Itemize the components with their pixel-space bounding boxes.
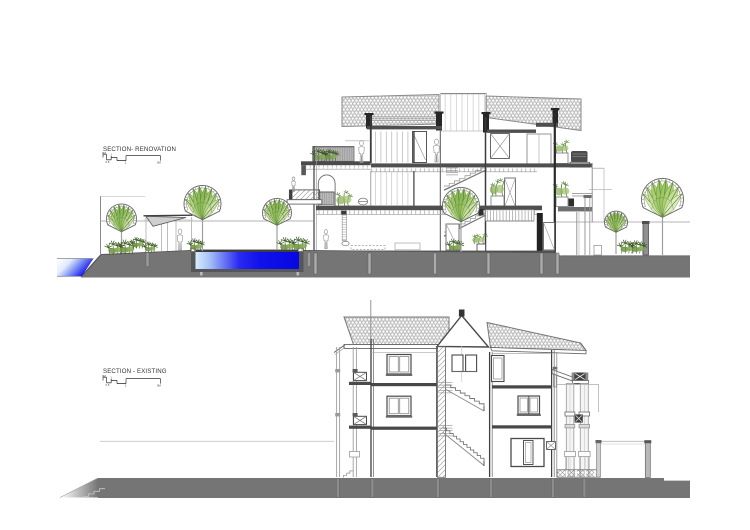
svg-text:0.5: 0.5 xyxy=(106,383,110,387)
svg-text:0.5: 0.5 xyxy=(106,160,110,164)
svg-text:SECTION - EXISTING: SECTION - EXISTING xyxy=(103,368,167,375)
svg-text:5M: 5M xyxy=(157,384,162,388)
svg-text:0M: 0M xyxy=(102,151,107,155)
svg-text:SECTION- RENOVATION: SECTION- RENOVATION xyxy=(103,146,176,153)
svg-text:0M: 0M xyxy=(102,374,107,378)
svg-text:5M: 5M xyxy=(157,161,162,165)
